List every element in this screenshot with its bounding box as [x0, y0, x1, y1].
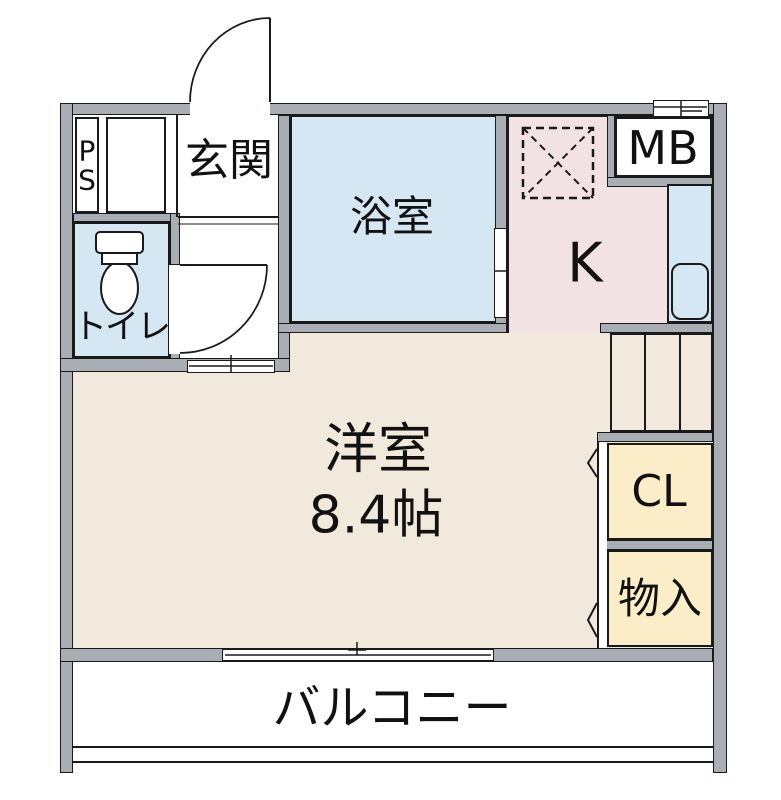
wall-under-ps	[73, 213, 178, 222]
outer-wall-left	[60, 103, 73, 773]
genkan-label: 玄関	[185, 138, 273, 184]
main-room-label: 洋室	[324, 422, 432, 479]
entrance-opening	[190, 100, 270, 117]
mb-vent-window	[653, 100, 709, 117]
outer-wall-right	[713, 103, 727, 773]
closet-separator-wall	[600, 540, 713, 550]
room-entry-sliding-door	[187, 360, 275, 373]
bathroom-label: 浴室	[350, 195, 434, 239]
floor-plan: P S 玄関 トイレ 浴室 K MB 洋室 8.4帖 CL 物入 バルコニー	[0, 0, 781, 800]
toilet-right-wall-upper	[170, 213, 180, 265]
ps-label: P S	[78, 137, 96, 196]
room-bottom-wall-left	[60, 648, 223, 662]
storage-label: 物入	[618, 577, 702, 621]
balcony-window	[223, 648, 493, 662]
kitchen-bottom-wall	[600, 323, 713, 333]
outer-wall-top	[60, 103, 727, 115]
stair-steps-area	[610, 333, 713, 432]
closet-label: CL	[631, 469, 686, 515]
closet-folding-door	[597, 442, 607, 648]
steps-bottom-wall	[597, 432, 713, 442]
entrance-door-arc	[190, 18, 270, 102]
bath-bottom-wall	[278, 323, 507, 333]
room-bottom-wall-right	[493, 648, 713, 662]
kitchen-sink-icon	[671, 263, 709, 320]
toilet-label: トイレ	[73, 310, 169, 346]
balcony-railing	[73, 746, 713, 763]
hall-bath-wall	[278, 115, 290, 372]
bathroom-door	[494, 228, 507, 318]
kitchen-label: K	[567, 236, 602, 293]
meter-box-label: MB	[627, 124, 698, 172]
toilet-door-opening	[169, 265, 180, 354]
main-room-size-label: 8.4帖	[309, 489, 444, 544]
shoe-cabinet	[106, 117, 166, 213]
balcony-label: バルコニー	[272, 683, 511, 733]
